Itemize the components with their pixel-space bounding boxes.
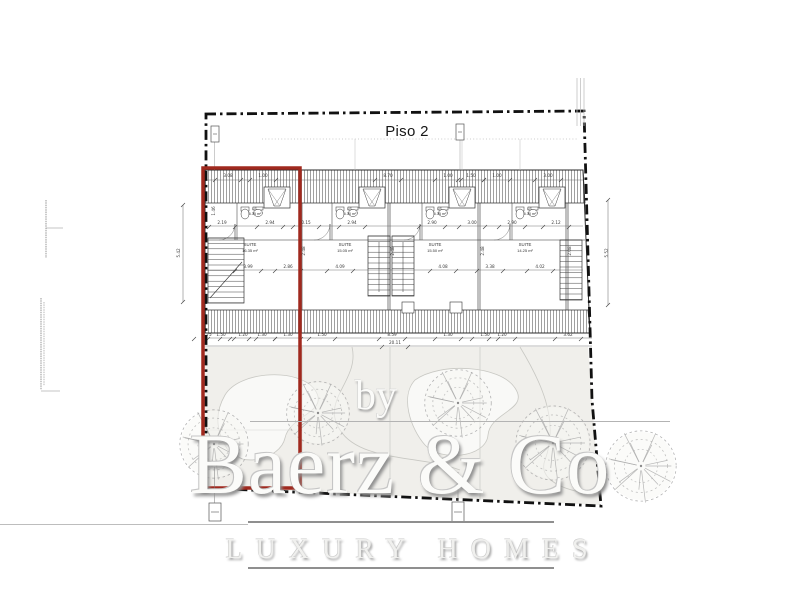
svg-text:2.86: 2.86 xyxy=(283,264,293,269)
svg-text:1.30: 1.30 xyxy=(443,332,453,337)
svg-text:15.50 m²: 15.50 m² xyxy=(427,248,443,253)
svg-text:2.48: 2.48 xyxy=(480,246,485,256)
svg-text:I.S.: I.S. xyxy=(347,207,353,211)
svg-text:1.50: 1.50 xyxy=(466,173,476,178)
svg-text:2.94: 2.94 xyxy=(265,220,275,225)
svg-text:5.35 m²: 5.35 m² xyxy=(434,212,448,216)
svg-text:1.30: 1.30 xyxy=(257,332,267,337)
svg-text:5.30 m²: 5.30 m² xyxy=(524,212,538,216)
svg-text:1.50: 1.50 xyxy=(216,332,226,337)
svg-text:3.99: 3.99 xyxy=(243,264,253,269)
svg-text:SUITE: SUITE xyxy=(519,242,532,247)
svg-text:3.62: 3.62 xyxy=(563,332,573,337)
svg-text:2.48: 2.48 xyxy=(390,246,395,256)
svg-text:20.11: 20.11 xyxy=(389,340,401,345)
svg-text:1.20: 1.20 xyxy=(238,332,248,337)
svg-text:5.52: 5.52 xyxy=(604,248,609,258)
svg-text:1.00: 1.00 xyxy=(258,173,268,178)
svg-text:2.12: 2.12 xyxy=(551,220,561,225)
svg-text:8.70: 8.70 xyxy=(383,173,393,178)
svg-text:I.S.: I.S. xyxy=(527,207,533,211)
svg-text:1.30: 1.30 xyxy=(283,332,293,337)
floor-title: Piso 2 xyxy=(0,123,800,140)
svg-text:3.38: 3.38 xyxy=(485,264,495,269)
margin-note-lines xyxy=(41,200,63,391)
svg-text:2.90: 2.90 xyxy=(507,220,517,225)
svg-text:1.50: 1.50 xyxy=(480,332,490,337)
svg-text:4.09: 4.09 xyxy=(335,264,345,269)
svg-text:5.42: 5.42 xyxy=(176,248,181,258)
svg-text:2.90: 2.90 xyxy=(427,220,437,225)
floor-plan-canvas: 3.081.008.701.001.501.003.002.192.940.15… xyxy=(0,0,800,600)
svg-text:3.08: 3.08 xyxy=(223,173,233,178)
svg-text:SUITE: SUITE xyxy=(244,242,257,247)
svg-text:8.59: 8.59 xyxy=(387,332,397,337)
svg-text:14.25 m²: 14.25 m² xyxy=(517,248,533,253)
svg-text:SUITE: SUITE xyxy=(429,242,442,247)
svg-text:0.15: 0.15 xyxy=(301,220,311,225)
svg-text:1.50: 1.50 xyxy=(317,332,327,337)
svg-text:I.S.: I.S. xyxy=(252,207,258,211)
svg-text:1.46: 1.46 xyxy=(211,206,216,216)
svg-text:1.00: 1.00 xyxy=(443,173,453,178)
svg-text:3.00: 3.00 xyxy=(543,173,553,178)
svg-text:I.S.: I.S. xyxy=(437,207,443,211)
svg-text:2.94: 2.94 xyxy=(347,220,357,225)
svg-text:4.08: 4.08 xyxy=(438,264,448,269)
svg-text:16.35 m²: 16.35 m² xyxy=(242,248,258,253)
svg-text:1.00: 1.00 xyxy=(492,173,502,178)
svg-text:4.02: 4.02 xyxy=(535,264,545,269)
svg-text:5.30 m²: 5.30 m² xyxy=(344,212,358,216)
svg-text:15.05 m²: 15.05 m² xyxy=(337,248,353,253)
svg-text:2.19: 2.19 xyxy=(217,220,227,225)
svg-text:3.00: 3.00 xyxy=(467,220,477,225)
svg-text:SUITE: SUITE xyxy=(339,242,352,247)
svg-text:2.08: 2.08 xyxy=(567,246,572,256)
svg-text:5.35 m²: 5.35 m² xyxy=(249,212,263,216)
drawing-sheet: 3.081.008.701.001.501.003.002.192.940.15… xyxy=(0,0,800,600)
svg-text:1.20: 1.20 xyxy=(497,332,507,337)
